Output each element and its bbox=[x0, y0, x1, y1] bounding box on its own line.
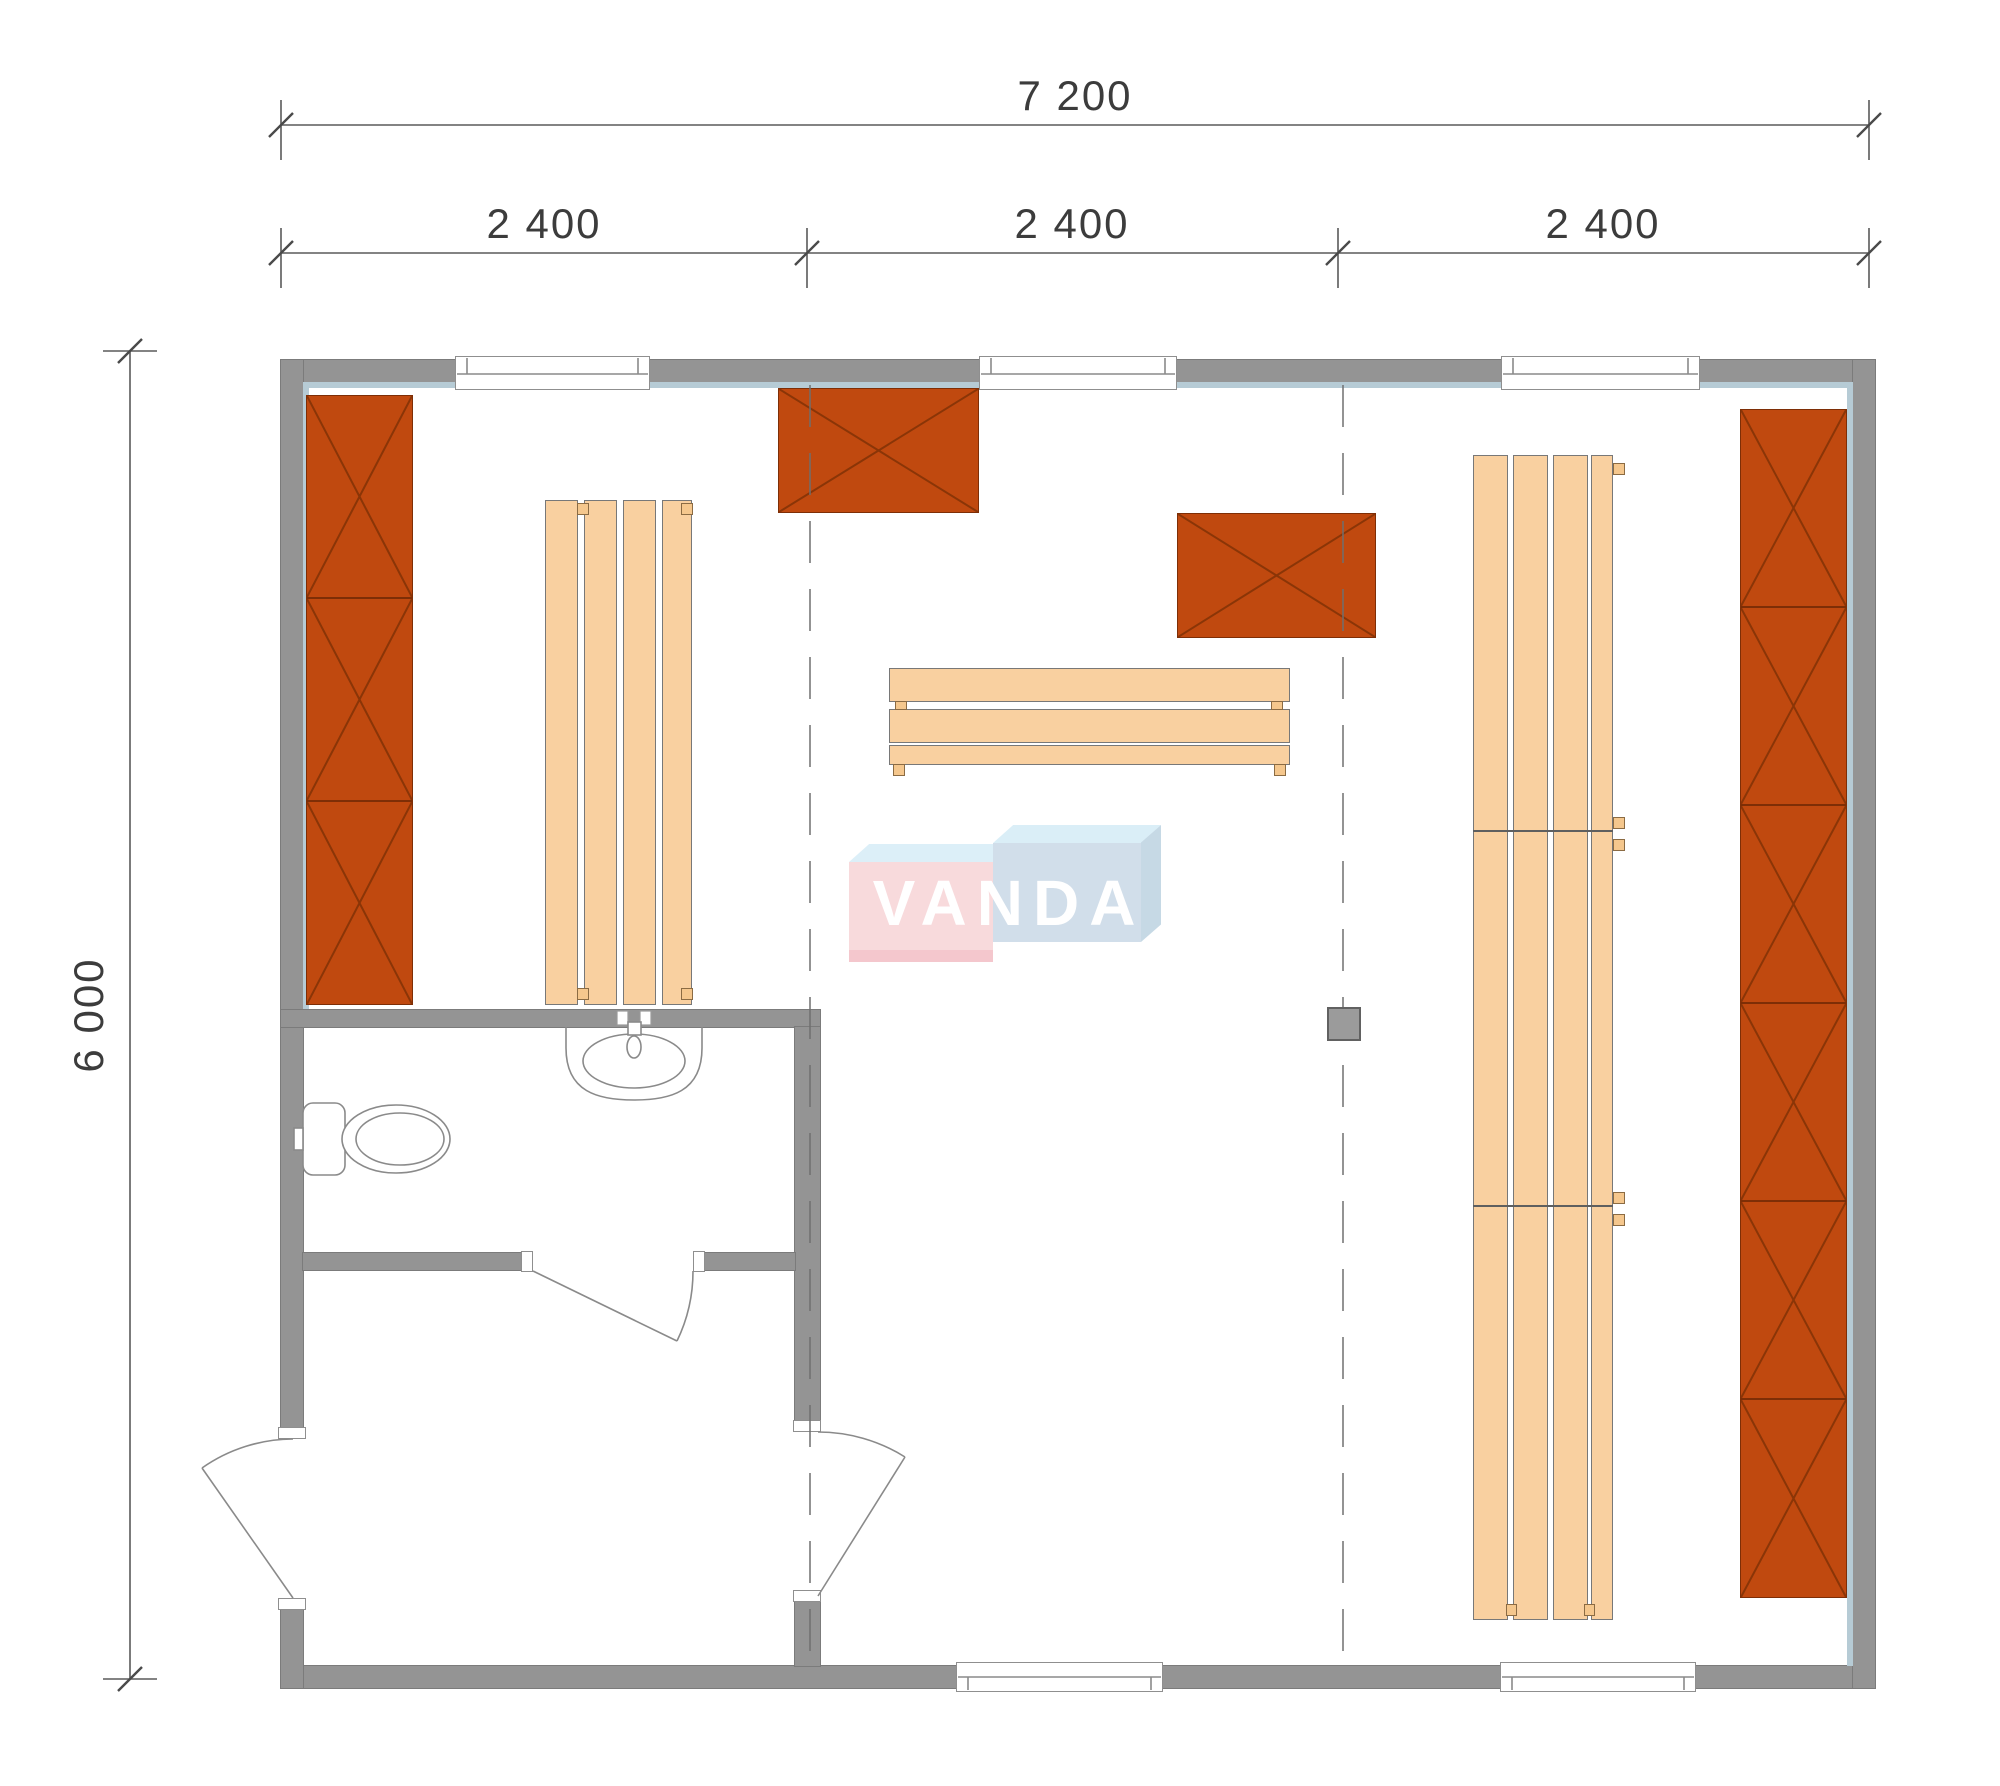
door-arc-bathroom bbox=[677, 1271, 693, 1341]
sink-wall-mount bbox=[617, 1011, 628, 1025]
window-frame-detail bbox=[1503, 358, 1698, 374]
watermark-box-red-edge bbox=[849, 950, 993, 962]
toilet-bowl bbox=[342, 1105, 450, 1173]
watermark-box-top-face-right bbox=[993, 825, 1161, 843]
window-frame-detail bbox=[981, 358, 1175, 374]
door-leaf-bathroom bbox=[533, 1271, 677, 1341]
door-arc-entrance bbox=[202, 1439, 293, 1468]
watermark-box-top-face-left bbox=[849, 844, 993, 862]
floor-plan-drawing: 7 200 2 400 2 400 2 400 6 000 bbox=[0, 0, 2000, 1786]
door-arc-hall bbox=[818, 1432, 905, 1457]
window-frame-detail bbox=[958, 1677, 1161, 1690]
stove bbox=[1327, 1007, 1361, 1041]
toilet-tank bbox=[303, 1103, 345, 1175]
sink-tap-base bbox=[628, 1022, 641, 1035]
toilet-flush-button bbox=[294, 1128, 303, 1150]
vanda-watermark: VANDA bbox=[845, 820, 1165, 970]
window-frame-detail bbox=[457, 358, 648, 374]
sink-tap bbox=[627, 1036, 641, 1058]
window-frame-detail bbox=[1502, 1677, 1694, 1690]
door-leaf-entrance bbox=[202, 1468, 293, 1598]
watermark-text: VANDA bbox=[859, 866, 1159, 940]
door-leaf-hall bbox=[818, 1457, 905, 1596]
